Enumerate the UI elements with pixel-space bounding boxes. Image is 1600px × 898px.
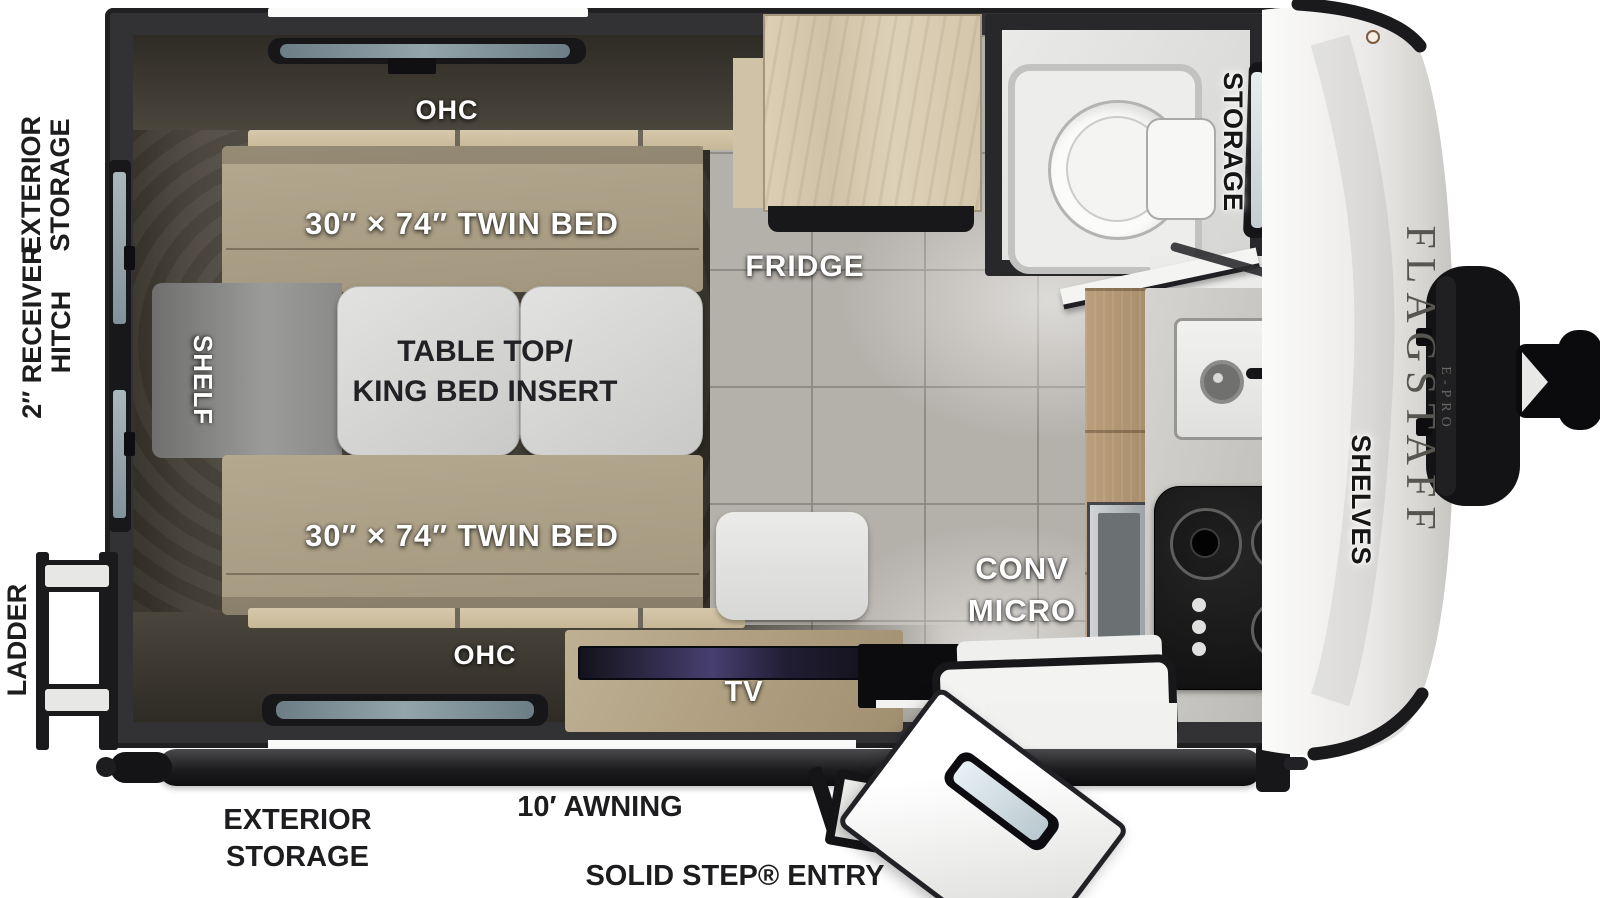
label-table-line1: TABLE TOP/	[330, 332, 640, 372]
label-line: HITCH	[47, 192, 76, 472]
ladder-rung	[40, 684, 114, 716]
label-exterior-storage-bottom: EXTERIOR STORAGE	[190, 802, 405, 876]
label-ladder: LADDER	[2, 555, 30, 725]
awning-roll	[158, 749, 1262, 786]
stove-knob	[1192, 598, 1206, 612]
rear-window-latch	[124, 246, 135, 270]
label-receiver-hitch: 2″ RECEIVER HITCH	[18, 192, 74, 472]
dinette-seat	[716, 512, 868, 620]
fridge-base	[768, 206, 974, 232]
label-conv-micro: CONV MICRO	[922, 548, 1122, 632]
window-bottom-glass	[276, 701, 534, 719]
toilet-tank	[1146, 118, 1216, 220]
label-solid-step-entry: SOLID STEP® ENTRY	[540, 860, 930, 893]
label-awning: 10′ AWNING	[485, 791, 715, 824]
rail-gap	[455, 608, 460, 628]
window-top-latch	[388, 58, 436, 74]
fridge-cabinet	[763, 14, 982, 212]
label-line: STORAGE	[190, 839, 405, 876]
label-conv-line2: MICRO	[922, 590, 1122, 632]
label-table-king-bed: TABLE TOP/ KING BED INSERT	[330, 332, 640, 412]
label-ohc-bottom: OHC	[423, 640, 547, 671]
shelf-surface	[152, 283, 342, 458]
label-line: 2″ RECEIVER	[18, 192, 47, 472]
roof-trim	[268, 8, 588, 17]
window-top-glass	[280, 44, 570, 58]
label-line: EXTERIOR	[190, 802, 405, 839]
rail-gap	[638, 608, 643, 628]
stove-knob	[1192, 620, 1206, 634]
burner-large	[1170, 508, 1242, 580]
label-table-line2: KING BED INSERT	[330, 372, 640, 412]
label-twin-bed-bottom: 30″ × 74″ TWIN BED	[232, 518, 692, 554]
brand-model: E-PRO	[1435, 319, 1453, 479]
label-tv: TV	[702, 676, 786, 709]
rear-window-latch	[124, 432, 135, 456]
label-conv-line1: CONV	[922, 548, 1122, 590]
sink-drain	[1200, 360, 1244, 404]
ladder-rung	[40, 560, 114, 592]
label-fridge: FRIDGE	[705, 250, 905, 284]
hitch-head	[1558, 330, 1600, 430]
awning-rail	[268, 740, 856, 748]
floorplan-canvas: FLAGSTAFF E-PRO OHC 30″ × 74″ TWIN BED T…	[0, 0, 1600, 898]
label-twin-bed-top: 30″ × 74″ TWIN BED	[232, 206, 692, 242]
awning-end-cap-left	[110, 752, 172, 783]
label-shelves: SHELVES	[1348, 415, 1376, 585]
tv-screen	[578, 646, 876, 680]
bed-rail-bottom	[248, 608, 745, 628]
label-ohc-top: OHC	[385, 95, 509, 126]
awning-pin-left	[96, 757, 116, 777]
marker-light	[1367, 31, 1379, 43]
stove-knob	[1192, 642, 1206, 656]
label-shelf: SHELF	[190, 305, 218, 455]
label-bath-storage: STORAGE	[1220, 47, 1248, 237]
door-window-glass	[951, 758, 1051, 843]
